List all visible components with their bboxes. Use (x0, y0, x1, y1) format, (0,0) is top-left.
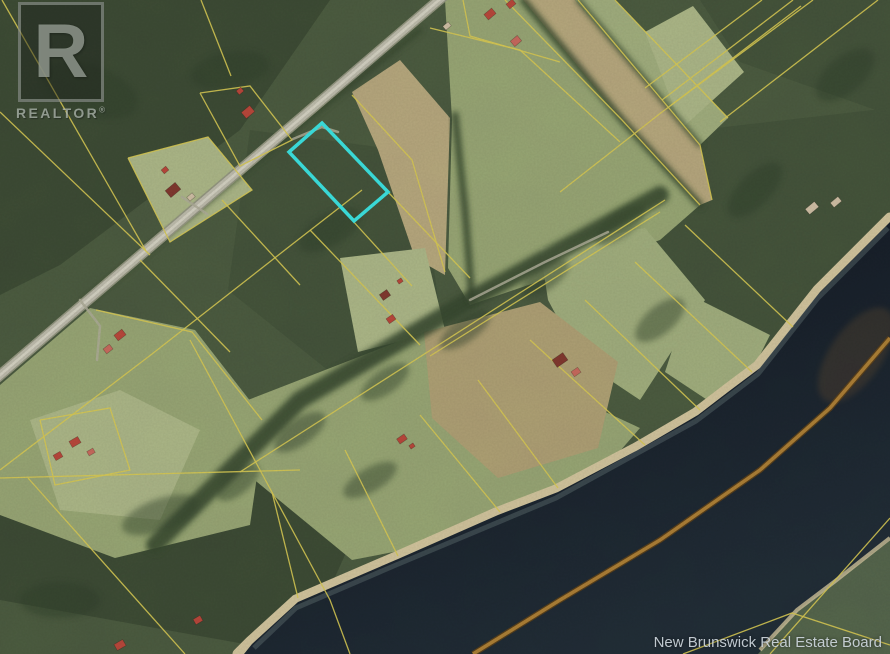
texture-grain-overlay (0, 0, 890, 654)
aerial-photo-map: R REALTOR® New Brunswick Real Estate Boa… (0, 0, 890, 654)
map-canvas (0, 0, 890, 654)
board-credit-text: New Brunswick Real Estate Board (654, 634, 882, 651)
